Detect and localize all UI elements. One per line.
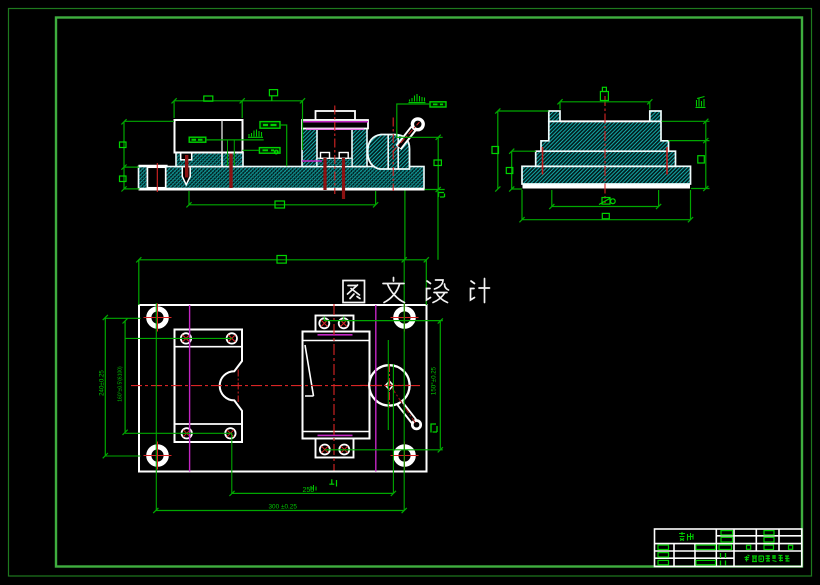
svg-text:255: 255 [303, 487, 315, 494]
svg-text:300 ±0.25: 300 ±0.25 [269, 504, 298, 511]
svg-text:160°±0.5'(6100): 160°±0.5'(6100) [118, 366, 124, 402]
svg-text:240±0.25: 240±0.25 [99, 370, 106, 396]
svg-text:150°±0.25: 150°±0.25 [431, 366, 438, 395]
